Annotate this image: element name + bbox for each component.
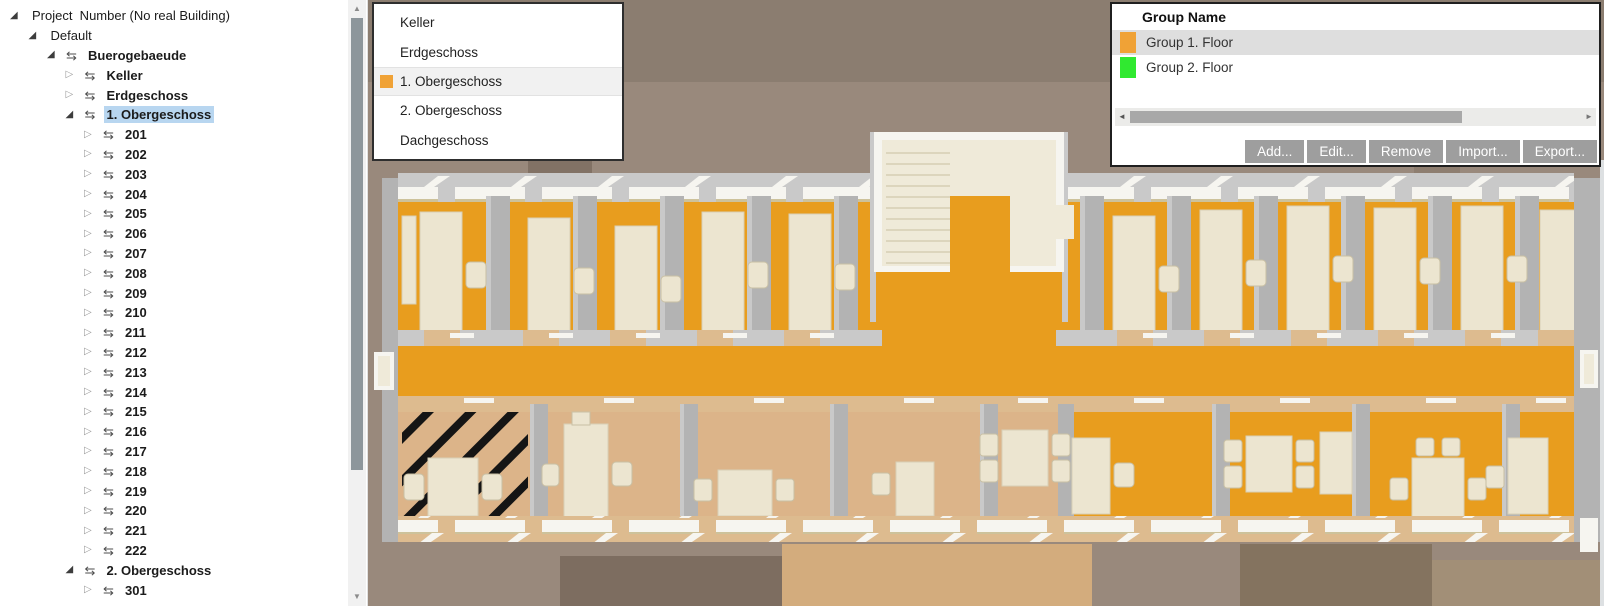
group-horizontal-scrollbar[interactable]: ◄ ► [1115, 108, 1596, 126]
tree-item-label[interactable]: 221 [122, 522, 150, 539]
tree-expander-icon[interactable]: ▷ [84, 466, 103, 476]
swap-arrows-icon: ⇆ [103, 386, 122, 399]
storey-list-panel: Keller Erdgeschoss 1. Obergeschoss 2. Ob… [372, 2, 624, 161]
group-row[interactable]: Group 1. Floor [1112, 30, 1599, 55]
tree-vertical-scrollbar[interactable]: ▲ ▼ [348, 0, 366, 606]
bottom-rooms-orange-floor [1058, 412, 1574, 516]
tree-item[interactable]: ▷ ⇆ 202 [84, 145, 348, 165]
scroll-up-arrow-icon[interactable]: ▲ [348, 5, 366, 13]
tree-item-label[interactable]: 301 [122, 582, 150, 599]
tree-item[interactable]: ▷ ⇆ 210 [84, 303, 348, 323]
tree-item[interactable]: ▷ ⇆ 206 [84, 224, 348, 244]
swap-arrows-icon: ⇆ [103, 544, 122, 557]
storey-label: Erdgeschoss [400, 45, 478, 60]
scroll-down-arrow-icon[interactable]: ▼ [348, 593, 366, 601]
swap-arrows-icon: ⇆ [85, 108, 104, 121]
group-list: Group 1. Floor Group 2. Floor [1112, 30, 1599, 80]
tree-item[interactable]: ◢ Default [29, 26, 349, 46]
tree-item[interactable]: ▷ ⇆ 211 [84, 323, 348, 343]
tree-item-label[interactable]: Erdgeschoss [104, 87, 192, 104]
tree-expander-icon[interactable]: ▷ [84, 149, 103, 159]
tree-expander-icon[interactable]: ▷ [84, 506, 103, 516]
tree-item-label[interactable]: Default [48, 27, 95, 44]
swap-arrows-icon: ⇆ [103, 326, 122, 339]
swap-arrows-icon: ⇆ [66, 49, 85, 62]
tree-item-label[interactable]: 201 [122, 126, 150, 143]
tree-item-label[interactable]: 1. Obergeschoss [104, 106, 215, 123]
storey-label: 2. Obergeschoss [400, 103, 502, 118]
tree-item[interactable]: ▷ ⇆ 212 [84, 343, 348, 363]
tree-item[interactable]: ▷ ⇆ 214 [84, 382, 348, 402]
tree-item-label[interactable]: Keller [104, 67, 146, 84]
tree-expander-icon[interactable]: ▷ [66, 70, 85, 80]
group-row[interactable]: Group 2. Floor [1112, 55, 1599, 80]
storey-list-item[interactable]: 2. Obergeschoss [374, 96, 622, 125]
tree-expander-icon[interactable]: ◢ [10, 11, 29, 21]
group-color-swatch [1120, 57, 1136, 78]
tree-item[interactable]: ▷ ⇆ Erdgeschoss [66, 85, 349, 105]
swap-arrows-icon: ⇆ [103, 247, 122, 260]
swap-arrows-icon: ⇆ [103, 128, 122, 141]
swap-arrows-icon: ⇆ [103, 207, 122, 220]
tree-item[interactable]: ▷ ⇆ 219 [84, 481, 348, 501]
bottom-window-frames [398, 516, 1574, 542]
tree-item[interactable]: ▷ ⇆ Keller [66, 65, 349, 85]
storey-list-item[interactable]: Dachgeschoss [374, 126, 622, 155]
tree-item-label[interactable]: 214 [122, 384, 150, 401]
swap-arrows-icon: ⇆ [103, 425, 122, 438]
tree-item-label[interactable]: 202 [122, 146, 150, 163]
swap-arrows-icon: ⇆ [103, 465, 122, 478]
tree-expander-icon[interactable]: ◢ [47, 50, 66, 60]
tree-expander-icon[interactable]: ◢ [66, 110, 85, 120]
swap-arrows-icon: ⇆ [103, 366, 122, 379]
tree-item-label[interactable]: 218 [122, 463, 150, 480]
tree-item-label[interactable]: 206 [122, 225, 150, 242]
stairwell [870, 132, 1074, 346]
tree-item[interactable]: ▷ ⇆ 201 [84, 125, 348, 145]
storey-label: Dachgeschoss [400, 133, 489, 148]
tree-item-label[interactable]: 215 [122, 403, 150, 420]
tree-item-label[interactable]: 2. Obergeschoss [104, 562, 215, 579]
swap-arrows-icon: ⇆ [103, 188, 122, 201]
tree-item-label[interactable]: 213 [122, 364, 150, 381]
tree-item-label[interactable]: 220 [122, 502, 150, 519]
tree-expander-icon[interactable]: ▷ [84, 248, 103, 258]
tree-expander-icon[interactable]: ▷ [84, 427, 103, 437]
tree-item[interactable]: ◢ ⇆ 1. Obergeschoss [66, 105, 349, 125]
storey-label: Keller [400, 15, 435, 30]
tree-item[interactable]: ▷ ⇆ 204 [84, 184, 348, 204]
tree-expander-icon[interactable]: ▷ [84, 328, 103, 338]
tree-item[interactable]: ▷ ⇆ 222 [84, 541, 348, 561]
tree-item-label[interactable]: Project Number (No real Building) [29, 7, 233, 24]
tree-item[interactable]: ◢ Project Number (No real Building) [10, 6, 348, 26]
tree-item-label[interactable]: 222 [122, 542, 150, 559]
tree-expander-icon[interactable]: ▷ [84, 585, 103, 595]
tree-item-label[interactable]: 212 [122, 344, 150, 361]
group-buttons: Add...Edit...RemoveImport...Export... [1245, 140, 1597, 163]
tree-expander-icon[interactable]: ▷ [84, 347, 103, 357]
tree-item-label[interactable]: 210 [122, 304, 150, 321]
tree-item-label[interactable]: 207 [122, 245, 150, 262]
swap-arrows-icon: ⇆ [103, 524, 122, 537]
tree-expander-icon[interactable]: ▷ [84, 367, 103, 377]
tree-item-label[interactable]: 211 [122, 324, 149, 341]
tree-item[interactable]: ▷ ⇆ 209 [84, 283, 348, 303]
project-tree-panel: ◢ Project Number (No real Building) ◢ De… [0, 0, 368, 606]
add-button[interactable]: Add... [1245, 140, 1304, 163]
swap-arrows-icon: ⇆ [85, 89, 104, 102]
tree-item[interactable]: ▷ ⇆ 216 [84, 422, 348, 442]
swap-arrows-icon: ⇆ [103, 485, 122, 498]
storey-label: 1. Obergeschoss [400, 74, 502, 89]
swap-arrows-icon: ⇆ [85, 69, 104, 82]
tree-item[interactable]: ◢ ⇆ 2. Obergeschoss [66, 560, 349, 580]
tree-expander-icon[interactable]: ▷ [84, 486, 103, 496]
tree-item-label[interactable]: 208 [122, 265, 150, 282]
swap-arrows-icon: ⇆ [103, 227, 122, 240]
tree-item[interactable]: ▷ ⇆ 215 [84, 402, 348, 422]
storey-list-item[interactable]: Erdgeschoss [374, 37, 622, 66]
swap-arrows-icon: ⇆ [103, 584, 122, 597]
stairs [886, 148, 950, 266]
tree-item[interactable]: ▷ ⇆ 217 [84, 442, 348, 462]
group-scrollbar-thumb[interactable] [1130, 111, 1462, 123]
swap-arrows-icon: ⇆ [103, 504, 122, 517]
tree-expander-icon[interactable]: ▷ [84, 209, 103, 219]
tree-item[interactable]: ▷ ⇆ 213 [84, 362, 348, 382]
project-tree: ◢ Project Number (No real Building) ◢ De… [0, 6, 348, 606]
tree-expander-icon[interactable]: ▷ [84, 407, 103, 417]
viewport-right-edge [1600, 160, 1604, 606]
scroll-left-arrow-icon[interactable]: ◄ [1115, 113, 1129, 121]
tree-expander-icon[interactable]: ◢ [66, 565, 85, 575]
tree-expander-icon[interactable]: ▷ [84, 169, 103, 179]
tree-item-label[interactable]: 216 [122, 423, 150, 440]
storey-list-item[interactable]: 1. Obergeschoss [374, 67, 622, 96]
tree-item[interactable]: ▷ ⇆ 203 [84, 164, 348, 184]
remove-button[interactable]: Remove [1369, 140, 1443, 163]
tree-item[interactable]: ▷ ⇆ 220 [84, 501, 348, 521]
scroll-right-arrow-icon[interactable]: ► [1582, 113, 1596, 121]
tree-scrollbar-thumb[interactable] [351, 18, 363, 470]
tree-expander-icon[interactable]: ▷ [84, 130, 103, 140]
tree-expander-icon[interactable]: ▷ [84, 229, 103, 239]
edit-button[interactable]: Edit... [1307, 140, 1366, 163]
tree-expander-icon[interactable]: ▷ [84, 545, 103, 555]
swap-arrows-icon: ⇆ [103, 267, 122, 280]
tree-item[interactable]: ▷ ⇆ 221 [84, 521, 348, 541]
tree-expander-icon[interactable]: ▷ [66, 90, 85, 100]
tree-item-label[interactable]: 205 [122, 205, 150, 222]
tree-expander-icon[interactable]: ▷ [84, 308, 103, 318]
group-label: Group 1. Floor [1146, 35, 1233, 50]
tree-item[interactable]: ▷ ⇆ 208 [84, 263, 348, 283]
import-button[interactable]: Import... [1446, 140, 1520, 163]
swap-arrows-icon: ⇆ [103, 405, 122, 418]
tree-item-label[interactable]: 217 [122, 443, 150, 460]
tree-item-label[interactable]: 203 [122, 166, 150, 183]
tree-expander-icon[interactable]: ▷ [84, 526, 103, 536]
tree-item[interactable]: ▷ ⇆ 207 [84, 244, 348, 264]
swap-arrows-icon: ⇆ [103, 168, 122, 181]
group-color-swatch [1120, 32, 1136, 53]
corridor-floor [398, 346, 1574, 396]
tree-expander-icon[interactable]: ▷ [84, 288, 103, 298]
export-button[interactable]: Export... [1523, 140, 1597, 163]
tree-expander-icon[interactable]: ◢ [29, 31, 48, 41]
tree-item[interactable]: ▷ ⇆ 301 [84, 580, 348, 600]
swap-arrows-icon: ⇆ [103, 148, 122, 161]
group-panel: Group Name Group 1. Floor Group 2. Floor… [1110, 2, 1601, 167]
swap-arrows-icon: ⇆ [85, 564, 104, 577]
application-window: ◢ Project Number (No real Building) ◢ De… [0, 0, 1604, 606]
tree-item-label[interactable]: 204 [122, 186, 150, 203]
group-name-header: Group Name [1112, 4, 1599, 30]
tree-expander-icon[interactable]: ▷ [84, 268, 103, 278]
swap-arrows-icon: ⇆ [103, 306, 122, 319]
tree-item[interactable]: ▷ ⇆ 205 [84, 204, 348, 224]
swap-arrows-icon: ⇆ [103, 287, 122, 300]
tree-item-label[interactable]: Buerogebaeude [85, 47, 189, 64]
tree-expander-icon[interactable]: ▷ [84, 387, 103, 397]
tree-expander-icon[interactable]: ▷ [84, 446, 103, 456]
swap-arrows-icon: ⇆ [103, 346, 122, 359]
storey-list-item[interactable]: Keller [374, 8, 622, 37]
group-label: Group 2. Floor [1146, 60, 1233, 75]
tree-item[interactable]: ◢ ⇆ Buerogebaeude [47, 46, 348, 66]
tree-item-label[interactable]: 209 [122, 285, 150, 302]
tree-expander-icon[interactable]: ▷ [84, 189, 103, 199]
tree-item[interactable]: ▷ ⇆ 218 [84, 461, 348, 481]
tree-item-label[interactable]: 219 [122, 483, 150, 500]
swap-arrows-icon: ⇆ [103, 445, 122, 458]
group-color-marker [380, 75, 393, 88]
